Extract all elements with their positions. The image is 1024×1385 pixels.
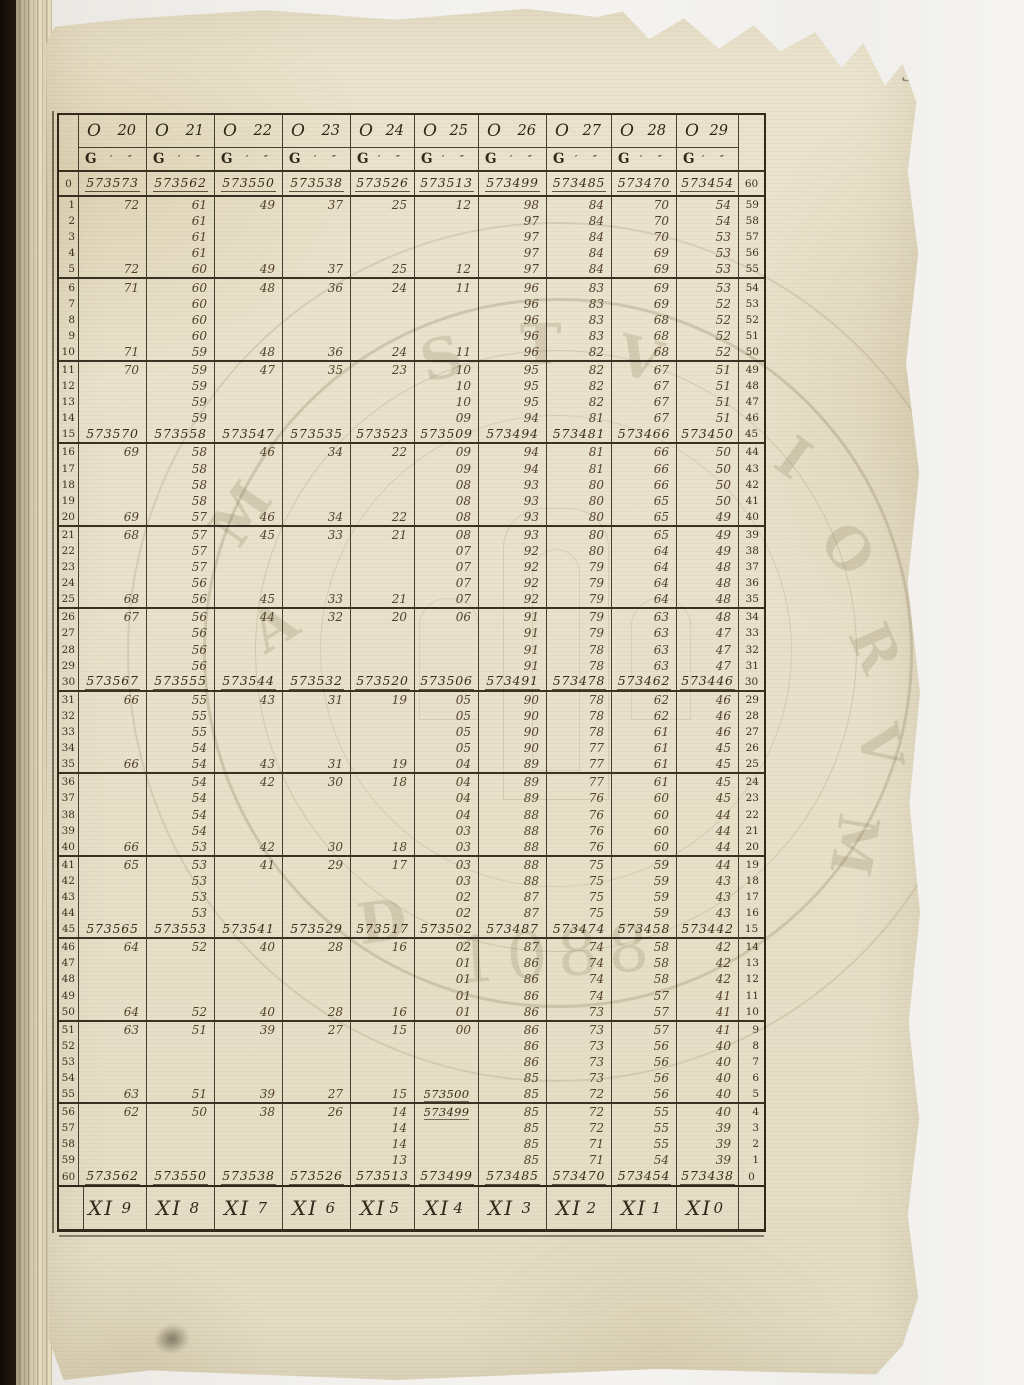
gradus-label: G [683, 151, 695, 167]
log-value: 66 [124, 693, 139, 707]
log-value: 573555 [153, 674, 208, 690]
minute-label-right: 39 [739, 527, 764, 543]
value-cell [215, 971, 283, 987]
value-cell: 25 [351, 261, 415, 277]
minute-label-right: 30 [739, 674, 764, 690]
value-cell: 96 [479, 279, 547, 295]
log-value: 60 [654, 824, 669, 838]
value-cell: 90 [479, 708, 547, 724]
log-value: 573523 [355, 426, 410, 442]
value-cell [415, 658, 479, 674]
value-cell: 07 [415, 591, 479, 607]
minute-label-left: 49 [59, 988, 79, 1004]
value-cell: 12 [415, 197, 479, 213]
value-cell: 44 [677, 857, 739, 873]
value-cell: 71 [547, 1136, 612, 1152]
log-value: 65 [654, 494, 669, 508]
table-row: 4619784695356 [59, 245, 764, 261]
value-cell: 78 [547, 724, 612, 740]
gradus-label: G [357, 151, 369, 167]
value-cell: 43 [215, 692, 283, 708]
log-value: 48 [260, 345, 275, 359]
value-cell: 15 [351, 1022, 415, 1038]
log-value: 56 [654, 1087, 669, 1101]
log-value: 86 [524, 1005, 539, 1019]
log-value: 90 [524, 725, 539, 739]
value-cell [215, 245, 283, 261]
log-value: 03 [456, 824, 471, 838]
log-value: 85 [524, 1121, 539, 1135]
degree-header-row: O20O21O22O23O24O25O26O27O28O29 [59, 115, 764, 148]
degree-header: O26 [479, 115, 547, 148]
table-row: 117059473523109582675149 [59, 360, 764, 378]
value-cell [283, 559, 351, 575]
table-row: 1958089380655041 [59, 493, 764, 509]
log-value: 85 [524, 1137, 539, 1151]
log-value: 56 [192, 626, 207, 640]
log-value: 80 [589, 528, 604, 542]
minute-label-right: 60 [739, 172, 764, 195]
zodiac-sign-symbol: XI [292, 1196, 318, 1220]
log-value: 40 [716, 1087, 731, 1101]
value-cell: 88 [479, 857, 547, 873]
value-cell: 53 [147, 857, 215, 873]
log-value: 93 [524, 510, 539, 524]
value-cell: 83 [547, 296, 612, 312]
degree-number: 2 [586, 1199, 596, 1217]
value-cell [283, 1120, 351, 1136]
log-value: 66 [654, 445, 669, 459]
minute-label-left: 40 [59, 839, 79, 855]
value-cell: 68 [612, 328, 677, 344]
log-value: 81 [589, 462, 604, 476]
log-value: 85 [524, 1105, 539, 1119]
value-cell [79, 971, 147, 987]
log-value: 82 [589, 363, 604, 377]
log-value: 39 [716, 1121, 731, 1135]
value-cell: 03 [415, 823, 479, 839]
log-table: O20O21O22O23O24O25O26O27O28O29G′ ″G′ ″G′… [57, 113, 766, 1232]
log-value: 48 [716, 560, 731, 574]
minute-label-right: 26 [739, 740, 764, 756]
log-value: 573573 [85, 175, 140, 192]
value-cell: 86 [479, 1038, 547, 1054]
value-cell: 81 [547, 410, 612, 426]
value-cell [351, 971, 415, 987]
minute-label-left: 28 [59, 642, 79, 658]
value-cell: 61 [147, 213, 215, 229]
value-cell [79, 328, 147, 344]
log-value: 85 [524, 1071, 539, 1085]
log-value: 573454 [617, 1169, 672, 1185]
value-cell [283, 1136, 351, 1152]
value-cell: 91 [479, 642, 547, 658]
value-cell: 16 [351, 1004, 415, 1020]
minute-label-right: 44 [739, 444, 764, 460]
log-value: 42 [260, 840, 275, 854]
value-cell [215, 378, 283, 394]
log-value: 573485 [552, 175, 607, 192]
log-value: 61 [192, 214, 207, 228]
value-cell: 573523 [351, 426, 415, 442]
log-value: 58 [192, 445, 207, 459]
minute-label-left: 22 [59, 543, 79, 559]
log-value: 76 [589, 840, 604, 854]
value-cell: 74 [547, 939, 612, 955]
value-cell: 71 [547, 1152, 612, 1168]
value-cell: 49 [677, 509, 739, 525]
minute-label-left: 2 [59, 213, 79, 229]
value-cell: 56 [147, 642, 215, 658]
log-value: 95 [524, 363, 539, 377]
value-cell: 14 [351, 1120, 415, 1136]
value-cell: 72 [547, 1104, 612, 1120]
value-cell: 05 [415, 692, 479, 708]
minute-label-left: 4 [59, 245, 79, 261]
value-cell [79, 394, 147, 410]
value-cell: 65 [612, 509, 677, 525]
value-cell: 67 [612, 394, 677, 410]
value-cell: 82 [547, 378, 612, 394]
value-cell: 96 [479, 344, 547, 360]
value-cell [215, 229, 283, 245]
value-cell: 44 [677, 806, 739, 822]
value-cell: 80 [547, 543, 612, 559]
log-value: 71 [589, 1153, 604, 1167]
minute-label-left: 46 [59, 939, 79, 955]
value-cell [351, 806, 415, 822]
value-cell [79, 461, 147, 477]
value-cell [147, 1120, 215, 1136]
log-value: 43 [716, 890, 731, 904]
value-cell [283, 724, 351, 740]
log-value: 25 [392, 262, 407, 276]
value-cell: 08 [415, 509, 479, 525]
value-cell: 24 [351, 344, 415, 360]
value-cell: 573513 [351, 1169, 415, 1185]
log-value: 11 [456, 345, 471, 359]
log-value: 12 [456, 198, 471, 212]
value-cell [351, 296, 415, 312]
value-cell: 43 [677, 905, 739, 921]
minute-label-right: 9 [739, 1022, 764, 1038]
value-cell: 56 [612, 1054, 677, 1070]
degree-number: 5 [389, 1199, 399, 1217]
log-value: 49 [716, 544, 731, 558]
log-value: 60 [192, 262, 207, 276]
value-cell: 11 [415, 344, 479, 360]
log-value: 46 [716, 709, 731, 723]
value-cell [351, 559, 415, 575]
value-cell: 53 [147, 905, 215, 921]
log-value: 73 [589, 1023, 604, 1037]
minute-label-right: 35 [739, 591, 764, 607]
value-cell: 44 [677, 823, 739, 839]
value-cell: 75 [547, 873, 612, 889]
log-value: 15 [392, 1023, 407, 1037]
log-value: 64 [654, 592, 669, 606]
value-cell [283, 790, 351, 806]
minute-label-left: 42 [59, 873, 79, 889]
log-value: 85 [524, 1087, 539, 1101]
value-cell: 27 [283, 1022, 351, 1038]
log-value: 48 [260, 281, 275, 295]
value-cell: 19 [351, 692, 415, 708]
log-value: 68 [124, 592, 139, 606]
minute-second-marks: ′ ″ [110, 153, 138, 166]
value-cell [351, 245, 415, 261]
value-cell: 10 [415, 394, 479, 410]
table-row: 48018674584212 [59, 971, 764, 987]
minute-label-right: 56 [739, 245, 764, 261]
value-cell: 54 [147, 756, 215, 772]
minute-label-right: 3 [739, 1120, 764, 1136]
value-cell: 72 [547, 1120, 612, 1136]
value-cell: 89 [479, 756, 547, 772]
corner-cell [59, 115, 79, 148]
minute-label-left: 17 [59, 461, 79, 477]
log-value: 75 [589, 890, 604, 904]
minute-label-left: 43 [59, 889, 79, 905]
log-value: 573509 [419, 426, 474, 442]
log-value: 69 [124, 510, 139, 524]
degree-number: 7 [257, 1199, 267, 1217]
minute-label-left: 60 [59, 1169, 79, 1185]
value-cell: 90 [479, 692, 547, 708]
log-value: 44 [260, 610, 275, 624]
value-cell: 58 [147, 444, 215, 460]
value-cell: 73 [547, 1054, 612, 1070]
minute-label-right: 29 [739, 692, 764, 708]
value-cell: 09 [415, 461, 479, 477]
degree-number: 26 [518, 123, 536, 139]
minute-label-right: 5 [739, 1086, 764, 1102]
corner-cell [59, 148, 79, 172]
log-value: 95 [524, 379, 539, 393]
value-cell: 44 [677, 839, 739, 855]
log-value: 67 [654, 379, 669, 393]
log-value: 13 [392, 1153, 407, 1167]
log-value: 64 [654, 576, 669, 590]
log-value: 91 [524, 643, 539, 657]
table-row: 1359109582675147 [59, 394, 764, 410]
minute-label-right: 34 [739, 609, 764, 625]
value-cell: 573529 [283, 921, 351, 937]
table-row: 206957463422089380654940 [59, 509, 764, 525]
value-cell [283, 658, 351, 674]
value-cell: 46 [677, 724, 739, 740]
log-value: 29 [328, 858, 343, 872]
log-value: 68 [124, 528, 139, 542]
log-value: 573567 [85, 674, 140, 690]
value-cell: 84 [547, 197, 612, 213]
value-cell [215, 410, 283, 426]
value-cell: 39 [215, 1022, 283, 1038]
log-value: 41 [716, 1023, 731, 1037]
log-value: 82 [589, 395, 604, 409]
minute-second-marks: ′ ″ [702, 153, 730, 166]
table-row: 3954038876604421 [59, 823, 764, 839]
footer-degree-header: XI4 [415, 1187, 479, 1229]
log-value: 43 [716, 874, 731, 888]
minute-label-left: 6 [59, 279, 79, 295]
table-row: 566250382614573499857255404 [59, 1102, 764, 1120]
value-cell: 57 [612, 1022, 677, 1038]
value-cell: 63 [79, 1022, 147, 1038]
value-cell: 58 [612, 939, 677, 955]
table-row: 107159483624119682685250 [59, 344, 764, 360]
log-value: 97 [524, 214, 539, 228]
log-value: 54 [192, 757, 207, 771]
zodiac-sign-symbol: O [223, 121, 237, 141]
value-cell: 04 [415, 790, 479, 806]
log-value: 32 [328, 610, 343, 624]
value-cell: 62 [612, 708, 677, 724]
page-stack-edges [16, 0, 52, 1385]
value-cell: 34 [283, 509, 351, 525]
table-row: 27569179634733 [59, 625, 764, 641]
log-value: 60 [654, 791, 669, 805]
log-value: 50 [716, 478, 731, 492]
log-value: 43 [716, 906, 731, 920]
log-value: 67 [654, 411, 669, 425]
minute-label-left: 59 [59, 1152, 79, 1168]
value-cell [215, 1054, 283, 1070]
value-cell: 573517 [351, 921, 415, 937]
value-cell: 46 [215, 444, 283, 460]
value-cell [79, 559, 147, 575]
log-value: 54 [192, 824, 207, 838]
degree-number: 3 [521, 1199, 531, 1217]
minute-label-right: 43 [739, 461, 764, 477]
log-value: 40 [260, 1005, 275, 1019]
log-value: 68 [654, 313, 669, 327]
value-cell [79, 245, 147, 261]
log-value: 87 [524, 940, 539, 954]
value-cell: 84 [547, 245, 612, 261]
log-value: 573547 [221, 426, 276, 442]
log-value: 59 [192, 411, 207, 425]
value-cell: 573506 [415, 674, 479, 690]
log-value: 55 [654, 1121, 669, 1135]
minute-label-right: 15 [739, 921, 764, 937]
value-cell: 573470 [612, 172, 677, 195]
value-cell [79, 296, 147, 312]
value-cell [283, 642, 351, 658]
value-cell: 02 [415, 939, 479, 955]
log-value: 56 [654, 1055, 669, 1069]
log-value: 46 [260, 510, 275, 524]
value-cell: 54 [677, 213, 739, 229]
value-cell [415, 1136, 479, 1152]
value-cell: 51 [677, 394, 739, 410]
value-cell: 66 [612, 477, 677, 493]
table-row: 53867356407 [59, 1054, 764, 1070]
value-cell: 57 [147, 527, 215, 543]
value-cell [79, 988, 147, 1004]
log-value: 55 [192, 725, 207, 739]
value-cell: 46 [677, 708, 739, 724]
log-value: 60 [654, 808, 669, 822]
value-cell [79, 229, 147, 245]
zodiac-sign-symbol: XI [156, 1196, 182, 1220]
minute-label-right: 55 [739, 261, 764, 277]
value-cell: 16 [351, 939, 415, 955]
value-cell: 45 [215, 527, 283, 543]
log-value: 51 [716, 379, 731, 393]
value-cell [283, 477, 351, 493]
log-value: 79 [589, 626, 604, 640]
value-cell: 62 [612, 692, 677, 708]
table-row: 4253038875594318 [59, 873, 764, 889]
log-value: 86 [524, 1039, 539, 1053]
value-cell: 573458 [612, 921, 677, 937]
value-cell [283, 625, 351, 641]
value-cell: 14 [351, 1104, 415, 1120]
value-cell: 56 [147, 658, 215, 674]
table-row: 466452402816028774584214 [59, 937, 764, 955]
value-cell [351, 889, 415, 905]
minute-label-left: 25 [59, 591, 79, 607]
minute-label-left: 11 [59, 362, 79, 378]
value-cell: 96 [479, 312, 547, 328]
log-value: 53 [192, 874, 207, 888]
log-value: 61 [654, 775, 669, 789]
value-cell: 42 [677, 955, 739, 971]
value-cell [351, 823, 415, 839]
log-value: 74 [589, 972, 604, 986]
log-value: 74 [589, 940, 604, 954]
minute-label-right: 19 [739, 857, 764, 873]
log-value: 62 [654, 709, 669, 723]
value-cell: 83 [547, 279, 612, 295]
log-value: 97 [524, 246, 539, 260]
minute-second-marks: ′ ″ [314, 153, 342, 166]
value-cell [79, 1136, 147, 1152]
minute-label-right: 58 [739, 213, 764, 229]
log-value: 01 [456, 1005, 471, 1019]
table-row: 17261493725129884705459 [59, 195, 764, 213]
value-cell: 84 [547, 261, 612, 277]
log-value: 58 [192, 494, 207, 508]
value-cell: 04 [415, 774, 479, 790]
value-cell: 55 [612, 1136, 677, 1152]
log-value: 69 [124, 445, 139, 459]
value-cell: 573555 [147, 674, 215, 690]
minute-second-marks: ′ ″ [442, 153, 470, 166]
value-cell: 573450 [677, 426, 739, 442]
log-value: 24 [392, 281, 407, 295]
minute-label-right: 37 [739, 559, 764, 575]
value-cell: 58 [147, 477, 215, 493]
value-cell: 19 [351, 756, 415, 772]
minute-label-left: 47 [59, 955, 79, 971]
value-cell [215, 1070, 283, 1086]
value-cell: 54 [147, 774, 215, 790]
minute-label-left: 5 [59, 261, 79, 277]
log-value: 53 [192, 890, 207, 904]
log-value: 75 [589, 858, 604, 872]
log-value: 60 [192, 281, 207, 295]
value-cell [79, 1120, 147, 1136]
table-row: 4453028775594316 [59, 905, 764, 921]
value-cell: 21 [351, 591, 415, 607]
value-cell: 10 [415, 362, 479, 378]
unit-header: G′ ″ [147, 148, 215, 172]
value-cell: 87 [479, 939, 547, 955]
table-row: 9609683685251 [59, 328, 764, 344]
value-cell [79, 493, 147, 509]
